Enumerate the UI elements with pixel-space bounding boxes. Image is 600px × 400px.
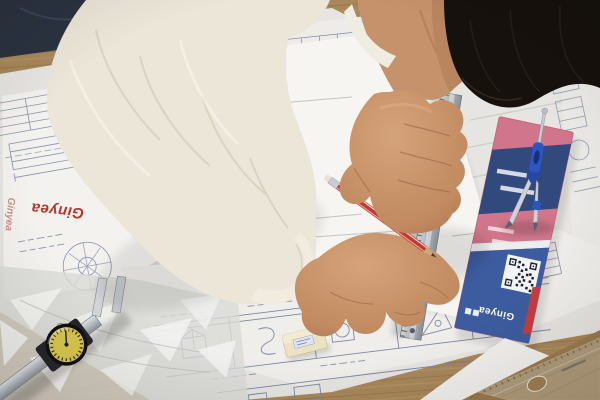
desk-drafting-photo: Ginyea Ginyea — [0, 0, 600, 400]
photo-scene: Ginyea Ginyea — [0, 0, 600, 400]
vignette — [0, 0, 600, 400]
